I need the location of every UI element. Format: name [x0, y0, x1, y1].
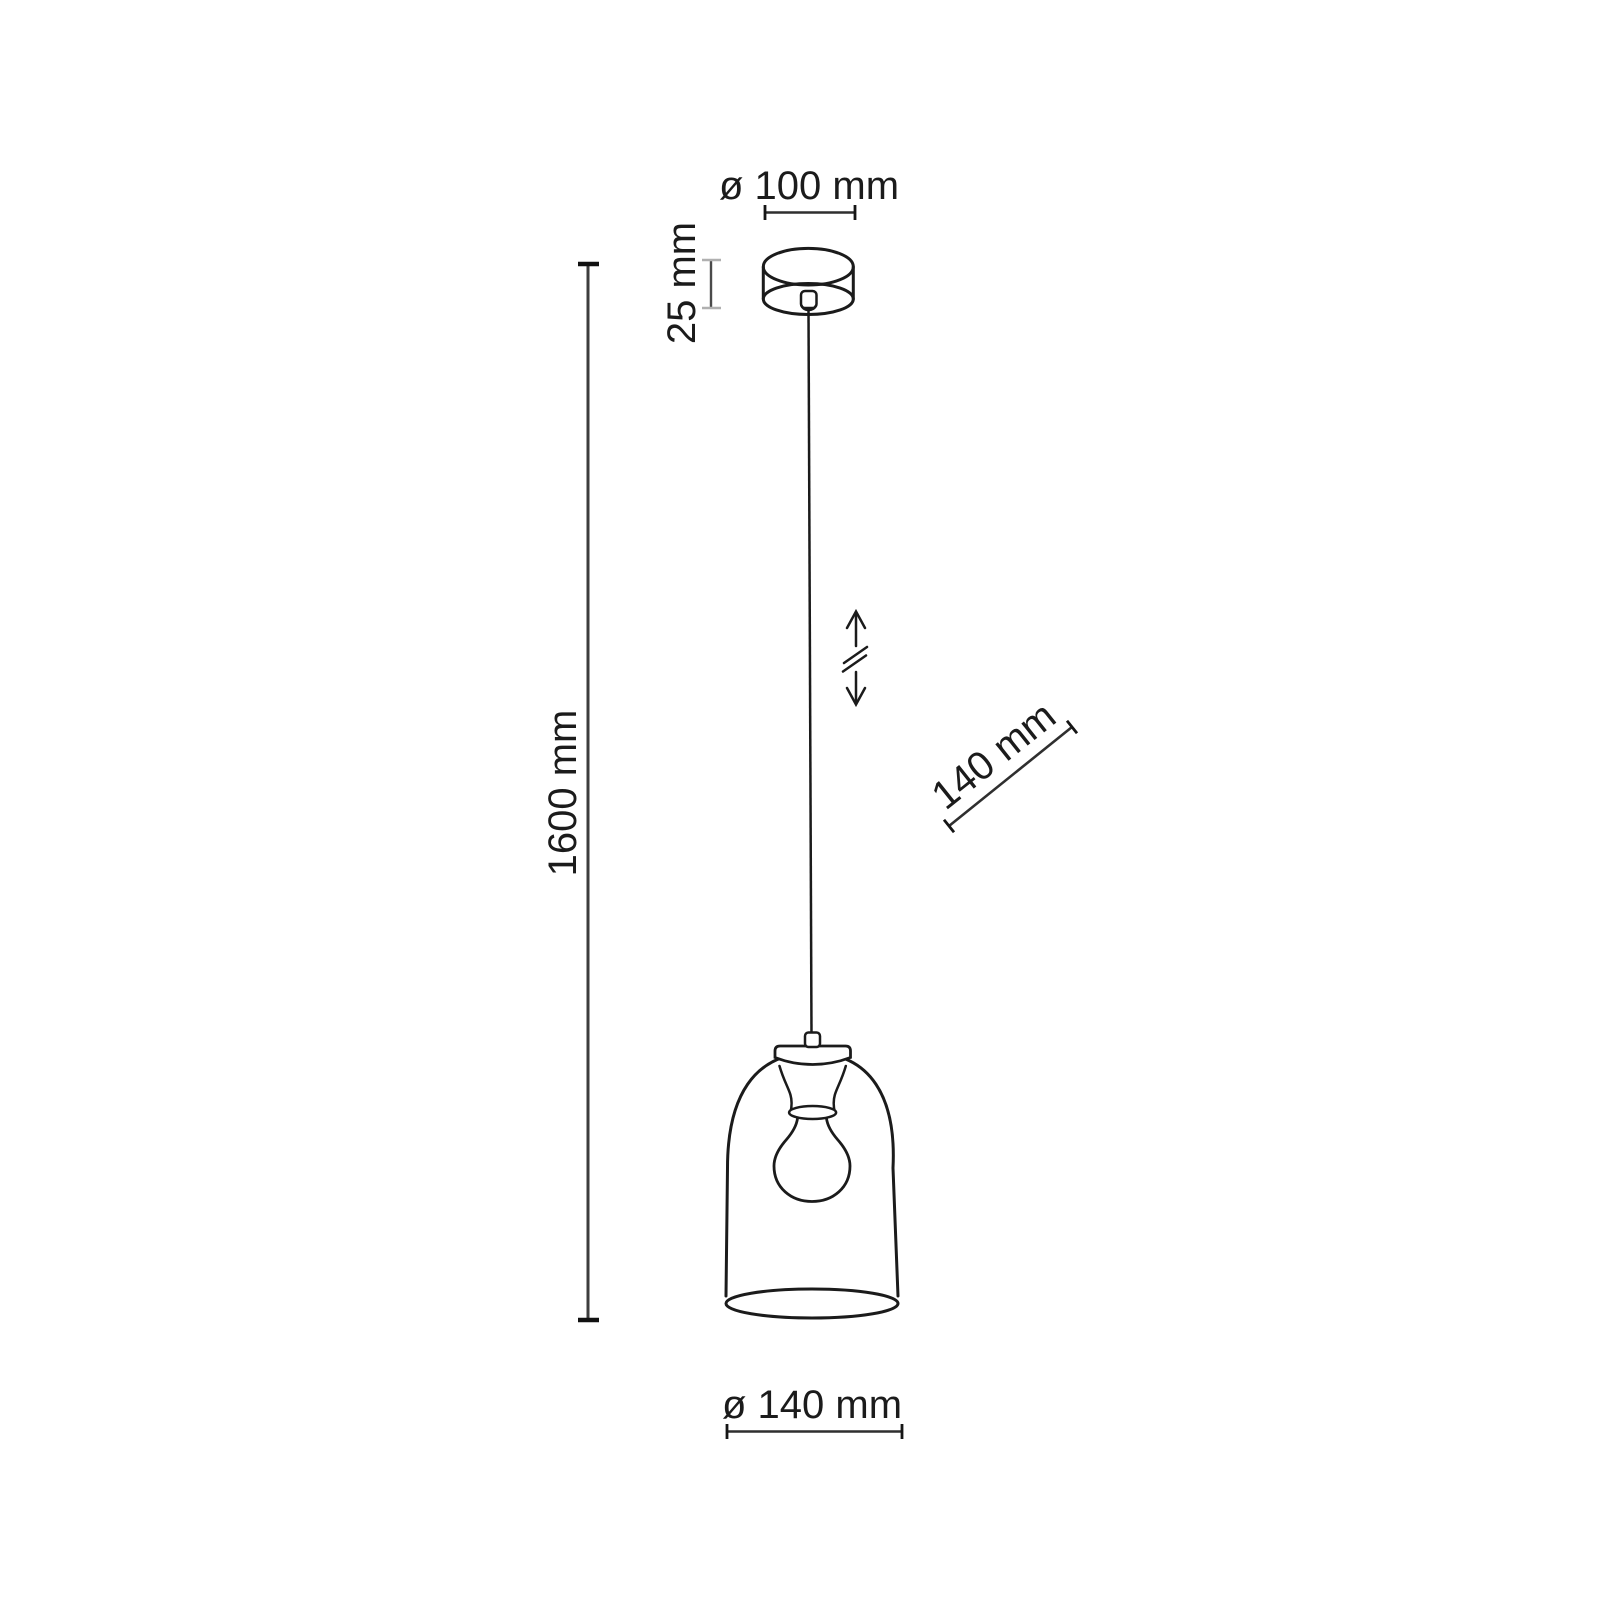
canopy-top-ellipse [763, 248, 853, 285]
shade-diameter-label: ø 140 mm [722, 1383, 902, 1427]
overall-height-label: 1600 mm [541, 710, 585, 877]
canopy-height-label: 25 mm [660, 222, 704, 344]
dim-canopy-diameter: ø 100 mm [719, 164, 899, 220]
dim-diagonal-140: 140 mm [924, 694, 1077, 833]
socket-rim [789, 1106, 836, 1119]
adjustable-height-icon [843, 612, 867, 705]
diagonal-dimension-label: 140 mm [924, 694, 1064, 819]
ceiling-canopy [763, 248, 853, 314]
dim-overall-height: 1600 mm [541, 264, 599, 1320]
canopy-diameter-label: ø 100 mm [719, 164, 899, 208]
diagram-page: ø 100 mm 25 mm 1600 mm 140 mm [0, 0, 1600, 1600]
pendant-lamp [726, 1033, 898, 1319]
shade-cap [775, 1046, 851, 1065]
dim-shade-diameter: ø 140 mm [722, 1383, 902, 1439]
pendant-lamp-technical-drawing: ø 100 mm 25 mm 1600 mm 140 mm [0, 0, 1600, 1600]
canopy-cable-grip [801, 291, 817, 308]
dim-canopy-height: 25 mm [660, 222, 721, 344]
cable-fitting [805, 1033, 820, 1048]
suspension-cable [809, 311, 812, 1035]
